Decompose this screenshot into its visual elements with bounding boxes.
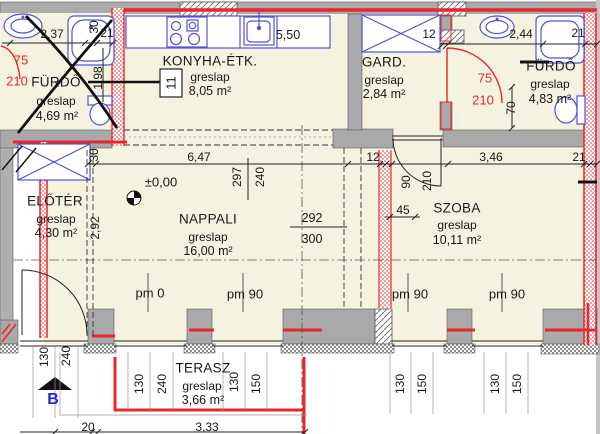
room-floor-nappali: greslap — [188, 231, 227, 243]
dim-bath1-depth: 1,98 — [92, 66, 104, 89]
parapet-label-0: pm 0 — [136, 287, 165, 300]
floor-plan-canvas: FÜRDŐ greslap 4,69 m² KONYHA-ÉTK. gresla… — [0, 0, 600, 434]
dim-szoba-width: 3,46 — [479, 151, 502, 163]
parapet-label-1: pm 90 — [227, 288, 263, 301]
dim-bath2-jamb: 21 — [571, 27, 584, 39]
dim-mid-h2: 240 — [254, 167, 266, 187]
dim-eloter-width: 2,92 — [89, 216, 101, 239]
wardrobe2-icon — [18, 144, 90, 180]
door-szoba-width: 90 — [400, 175, 412, 188]
toilet-icon — [88, 96, 112, 125]
dim-nappali-total: 300 — [302, 233, 323, 246]
room-floor-terasz: greslap — [182, 380, 221, 392]
parapet-label-2: pm 90 — [392, 288, 428, 301]
dim-left-a: 130 — [38, 347, 50, 367]
dim-kitchen-counter: 5,50 — [276, 29, 300, 42]
room-name-furdo2: FÜRDŐ — [526, 59, 576, 73]
dim-mid-jamb: 21 — [572, 151, 585, 163]
dim-mid-h1: 297 — [231, 167, 243, 187]
level-benchmark-icon — [127, 191, 141, 205]
dim-bath2-width: 2,44 — [509, 28, 532, 40]
dim-szoba-offset: 45 — [396, 204, 409, 216]
room-area-furdo2: 4,83 m² — [529, 93, 571, 106]
dim-nappali-clear: 292 — [302, 212, 323, 225]
dim-terrace-a: 130 — [133, 374, 145, 394]
dim-terrace-d: 150 — [250, 374, 262, 394]
room-area-konyha: 8,05 m² — [189, 85, 231, 98]
room-floor-furdo1: greslap — [36, 95, 75, 107]
dim-mid-wall2: 12 — [366, 151, 379, 163]
room-floor-furdo2: greslap — [530, 78, 569, 90]
room-floor-gard: greslap — [364, 74, 403, 86]
dim-nappali-width: 6,47 — [187, 151, 210, 163]
dim-mid-wall: 30 — [88, 148, 100, 161]
room-name-szoba: SZOBA — [433, 201, 480, 215]
dim-right1-b: 150 — [416, 374, 428, 394]
dim-terrace-b: 240 — [156, 374, 168, 394]
room-area-furdo1: 4,69 m² — [36, 110, 78, 123]
door-bath2-height: 210 — [472, 94, 494, 107]
room-area-terasz: 3,66 m² — [182, 394, 224, 407]
sink-icon — [244, 12, 274, 45]
room-floor-eloter: greslap — [36, 213, 75, 225]
stove-icon — [167, 17, 207, 47]
dim-right2-b: 150 — [511, 374, 523, 394]
room-area-eloter: 4,30 m² — [35, 227, 77, 240]
door-bath2-width: 75 — [478, 72, 492, 85]
room-area-gard: 2,84 m² — [363, 88, 405, 101]
door-bath1-height: 210 — [6, 75, 28, 88]
dim-bottom-a: 20 — [81, 421, 94, 433]
dim-bath2-sill: 70 — [505, 101, 517, 114]
kitchen-ref-number: 11 — [165, 76, 178, 90]
room-name-eloter: ELŐTÉR — [27, 194, 83, 208]
room-name-furdo1: FÜRDŐ — [31, 75, 81, 89]
dim-bath1-jamb: 21 — [100, 27, 113, 39]
section-marker-label: B — [47, 392, 59, 408]
parapet-label-3: pm 90 — [489, 288, 525, 301]
room-area-szoba: 10,11 m² — [433, 234, 481, 247]
room-floor-szoba: greslap — [437, 219, 476, 231]
room-name-konyha: KONYHA-ÉTK. — [163, 54, 258, 68]
room-area-nappali: 16,00 m² — [183, 245, 232, 258]
dim-bath1-wall: 30 — [88, 20, 100, 33]
room-floor-konyha: greslap — [190, 71, 229, 83]
dim-terrace-c: 130 — [228, 372, 240, 392]
room-name-terasz: TERASZ — [175, 361, 230, 375]
dim-bottom-b: 3,33 — [195, 421, 218, 433]
door-szoba-height: 210 — [421, 171, 433, 191]
dim-bath1-width: 2,37 — [40, 28, 63, 40]
room-name-gard: GARD. — [362, 55, 406, 69]
room-name-nappali: NAPPALI — [179, 212, 237, 226]
level-marker: ±0,00 — [145, 176, 177, 189]
dim-left-b: 240 — [60, 346, 72, 366]
dim-right1-a: 130 — [394, 374, 406, 394]
dim-gard-wall: 12 — [422, 28, 435, 40]
door-bath1-width: 75 — [14, 54, 28, 67]
dim-right2-a: 130 — [489, 374, 501, 394]
